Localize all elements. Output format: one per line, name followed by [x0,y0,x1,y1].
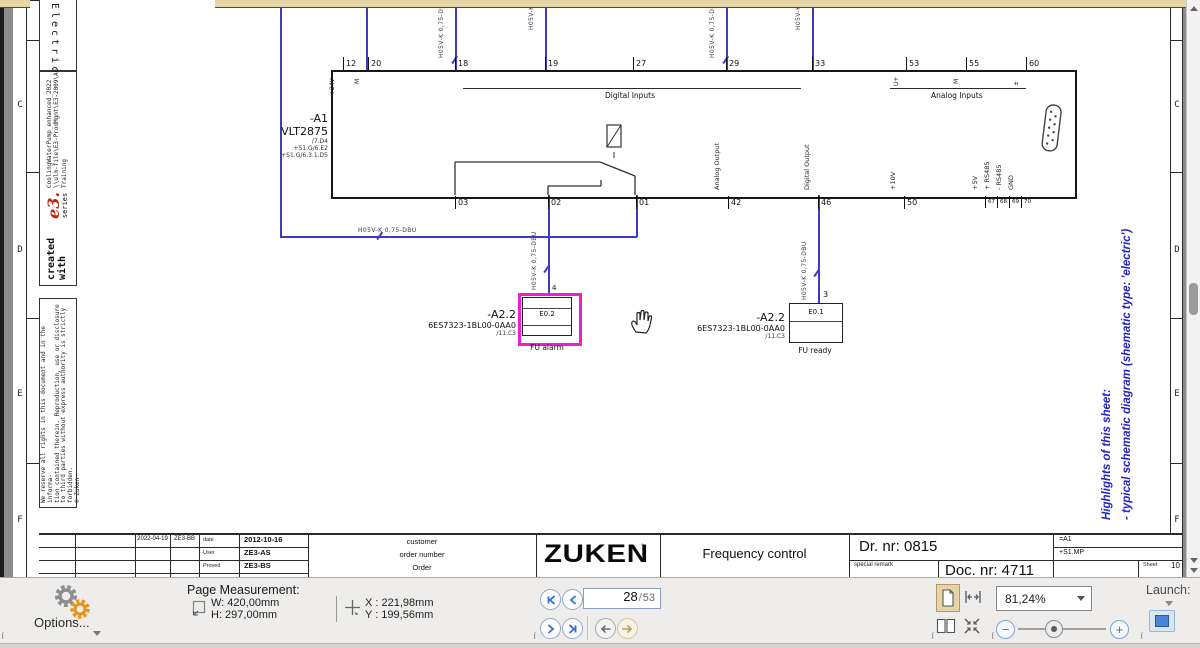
scroll-up-icon[interactable] [1190,6,1198,11]
device-ref: +S1.G/6.E2 [193,145,328,152]
next-sheet-button[interactable] [540,618,561,639]
options-chevron-down-icon[interactable] [93,631,101,636]
pin-number: 33 [812,57,825,70]
launch-chevron-down-icon[interactable] [1165,601,1173,606]
scroll-down-icon[interactable] [1190,558,1198,563]
module-part: 6ES7323-1BL00-0AA0 [663,324,785,333]
group-underline [463,88,801,89]
plc-module-e01[interactable]: E0.1 [789,303,843,343]
page-height-value: H: 297,00mm [211,609,277,621]
drawing-title: Frequency control [660,546,849,561]
toolbar-drag-handle[interactable]: ĺ [992,634,994,641]
plc-module-e02-highlight[interactable]: E0.2 [518,293,582,346]
cursor-position-icon [344,599,361,616]
row-letter-left: F [14,515,26,525]
wire-label: H05V-K 0,75-DBU [531,231,539,290]
frame-tick [1170,172,1183,173]
frame-tick [1170,318,1183,319]
field-label-date: date [203,537,214,543]
io-label: Analog Output [713,143,721,190]
wire-label: H05V-K 0,75-DBU [358,227,417,234]
e3-logo-series: series [62,192,69,219]
wire[interactable] [818,195,820,304]
titleblock-line [1053,533,1054,577]
sheet-number-input[interactable]: 28 / 53 [583,588,661,609]
zoom-level-combobox[interactable]: 81,24% [996,586,1092,611]
launch-app-button[interactable] [1149,610,1175,632]
pin-number: 42 [728,196,741,209]
pin-label: ± [1013,81,1021,86]
titleblock-line [239,533,240,577]
module-name: -A2.2 [663,311,785,324]
pin-number: 27 [633,57,646,70]
revision-user: ZE3-BB [170,536,199,542]
history-forward-button[interactable] [617,618,638,639]
pin-number: 29 [726,57,739,70]
schematic-sheet-canvas[interactable]: C D E F C D E F Electric created with e3… [13,0,1183,577]
toolbar-drag-handle[interactable]: ĺ [534,634,536,641]
device-ref: /7.D4 [193,138,328,145]
sheet-highlights-title: Highlights of this sheet: [1103,389,1119,520]
sheet-number: 10 [1171,561,1180,570]
status-toolbar: ĺ ĺ ĺ ĺ ĺ Options... Page Measurement: W… [0,577,1200,644]
vertical-scrollbar[interactable] [1186,0,1200,577]
titleblock-line [849,533,850,577]
last-sheet-button[interactable] [562,618,583,639]
pin-number: 19 [545,57,558,70]
toolbar-drag-handle[interactable]: ĺ [2,634,4,641]
page-width-value: W: 420,00mm [211,597,279,609]
wire-label: H05V-K 0,75-DBU [438,0,446,58]
group-label-analog-inputs: Analog Inputs [931,91,983,100]
two-page-view-button[interactable] [934,614,958,638]
toolbar-drag-handle[interactable]: ĺ [1141,634,1143,641]
first-sheet-button[interactable] [540,589,561,610]
pin-number: 53 [906,57,919,70]
row-letter-left: D [14,245,26,255]
window-edge [0,0,4,577]
previous-sheet-button[interactable] [562,589,583,610]
current-sheet: 28 [623,589,637,604]
field-label-proved: Proved [203,563,220,569]
module-part: 6ES7323-1BL00-0AA0 [393,321,516,330]
nav-divider [587,616,588,640]
sheet-label: Sheet [1143,562,1157,568]
doc-type-label: Electric [49,3,60,75]
module-function: FU alarm [518,343,576,352]
ribbon-edge-strip [0,0,30,8]
zoom-slider-thumb[interactable] [1045,620,1063,638]
project-path: \\ulm-file\E3-ProdMgmt\E3-2009\AE Traini… [53,68,68,188]
module-ref: /11.C3 [393,330,516,337]
module-name: -A2.2 [393,308,516,321]
copyright-notice: We reserve all rights in this document a… [40,297,75,505]
io-label: - RS485 [995,165,1003,190]
customer-cell: customer order number Order [308,535,536,574]
frame-tick [26,463,39,464]
sidebar-doc-type-box: Electric [39,0,77,72]
history-back-button[interactable] [595,618,616,639]
io-label: GND [1007,175,1015,190]
frame-tick [1170,40,1183,41]
zuken-logo: ZUKEN° [536,540,660,569]
field-label-user: User [203,550,215,556]
scrollbar-thumb[interactable] [1189,283,1198,315]
pin-number: 60 [1026,57,1039,70]
pin-number: 20 [368,57,381,70]
module-pin: 4 [552,284,556,292]
pin-number: 46 [818,196,831,209]
titleblock-line [1138,560,1139,577]
pan-hand-cursor-icon [629,308,653,334]
device-name: -A1 [193,112,328,125]
pin-number: 68 [997,196,1007,208]
total-sheets: 53 [643,592,655,604]
frame-tick [1170,463,1183,464]
io-label: +5V [971,176,979,190]
field-value-user: ZE3-AS [244,548,271,557]
e3-series-window: C D E F C D E F Electric created with e3… [0,0,1200,648]
launch-label: Launch: [1146,583,1190,597]
row-letter-left: C [14,100,26,110]
titleblock-line [39,573,308,574]
pin-number: 67 [985,196,995,208]
titleblock-line [199,533,200,577]
fit-page-view-button[interactable] [960,614,984,638]
zoom-in-button[interactable]: + [1110,620,1129,639]
relay-contact-symbol [443,118,653,198]
group-underline [890,88,1026,89]
io-label: + RS485 [983,161,991,190]
module-function: FU ready [789,346,841,355]
project-name: CoolingWaterPump_enhanced_2022 [46,68,54,188]
frame-line [1182,0,1183,577]
pin-number: 55 [966,57,979,70]
row-letter-right: D [1171,245,1183,255]
pin-number: 70 [1021,196,1031,208]
zoom-chevron-down-icon [1077,596,1085,601]
sheet-separator: / [639,592,642,604]
location-ref-2: +S1.MP [1059,549,1084,556]
zoom-out-button[interactable]: − [996,620,1015,639]
field-value-date: 2012-10-16 [244,535,282,544]
document-number: Doc. nr: 4711 [945,562,1034,577]
e3-logo-icon: e3. [46,192,62,219]
ribbon-edge-strip [215,0,1186,8]
zuken-logo-text: ZUKEN [545,540,650,569]
module-designation: -A2.2 6ES7323-1BL00-0AA0 /11.C3 [663,311,785,340]
field-value-proved: ZE3-BS [244,561,271,570]
module-signal: E0.1 [790,308,842,316]
pin-label: M [953,79,961,84]
row-letter-left: E [14,389,26,399]
scroll-page-down-icon[interactable] [1190,568,1198,573]
location-ref-1: =A1 [1059,536,1072,543]
pin-number: 50 [904,196,917,209]
pin-label: +24V [329,78,337,95]
io-label: +10V [889,172,897,190]
frame-tick [26,40,39,41]
titleblock-line [1053,547,1183,548]
group-label-digital-inputs: Digital Inputs [605,91,655,100]
wire[interactable] [280,236,637,238]
single-page-view-button[interactable] [936,584,960,612]
module-pin: 3 [823,290,828,299]
cursor-y-value: Y : 199,56mm [365,609,433,621]
zoom-level-value: 81,24% [997,592,1077,606]
pin-label: U+ [893,77,901,86]
sidebar-created-with-box: created with e3. series CoolingWaterPump… [39,70,77,286]
dsub-connector-icon [1039,102,1065,156]
titleblock-line [849,560,1183,561]
module-ref: /11.C3 [663,333,785,340]
wire[interactable] [548,195,550,294]
frame-line [26,0,27,577]
titleblock-line [39,533,1183,535]
created-with-label: created with [46,223,68,280]
module-signal: E0.2 [523,310,571,318]
device-designation: -A1 VLT2875 /7.D4 +S1.G/6.E2 +S1.G/6.3.1… [193,112,328,159]
taskbar-edge [0,643,1200,648]
titleblock-line [75,533,76,577]
module-designation: -A2.2 6ES7323-1BL00-0AA0 /11.C3 [393,308,516,337]
page-measurement-title: Page Measurement: [187,583,300,597]
io-label: Digital Output [803,144,811,190]
device-ref: +S1.G/6.3.1.D5 [193,152,328,159]
fit-width-view-button[interactable] [962,584,984,610]
titleblock-line [938,560,939,577]
sheet-highlights-note: - typical schematic diagram (shematic ty… [1123,229,1139,520]
frame-line [1170,0,1171,533]
pin-number: 18 [455,57,468,70]
options-button[interactable]: Options... [34,615,90,630]
page-size-icon [190,598,207,617]
frame-tick [26,318,39,319]
row-letter-right: E [1171,389,1183,399]
sidebar-legal-box: We reserve all rights in this document a… [39,298,77,508]
row-letter-right: F [1171,515,1183,525]
device-type: VLT2875 [193,125,328,138]
pin-number: 69 [1009,196,1019,208]
row-letter-right: C [1171,100,1183,110]
frame-tick [26,172,39,173]
cursor-x-value: X : 221,98mm [365,597,433,609]
revision-date: 2022-04-19 [135,536,170,542]
pin-number: 12 [343,57,356,70]
wire-label: H05V-K 0,75-DBU [801,241,809,300]
measure-divider [336,596,337,622]
wire-label: H05V-K 0,75-DBU [709,0,717,58]
drawing-number: Dr. nr: 0815 [859,538,937,555]
pin-label: M [354,79,362,84]
special-remark-label: special remark [854,562,893,568]
